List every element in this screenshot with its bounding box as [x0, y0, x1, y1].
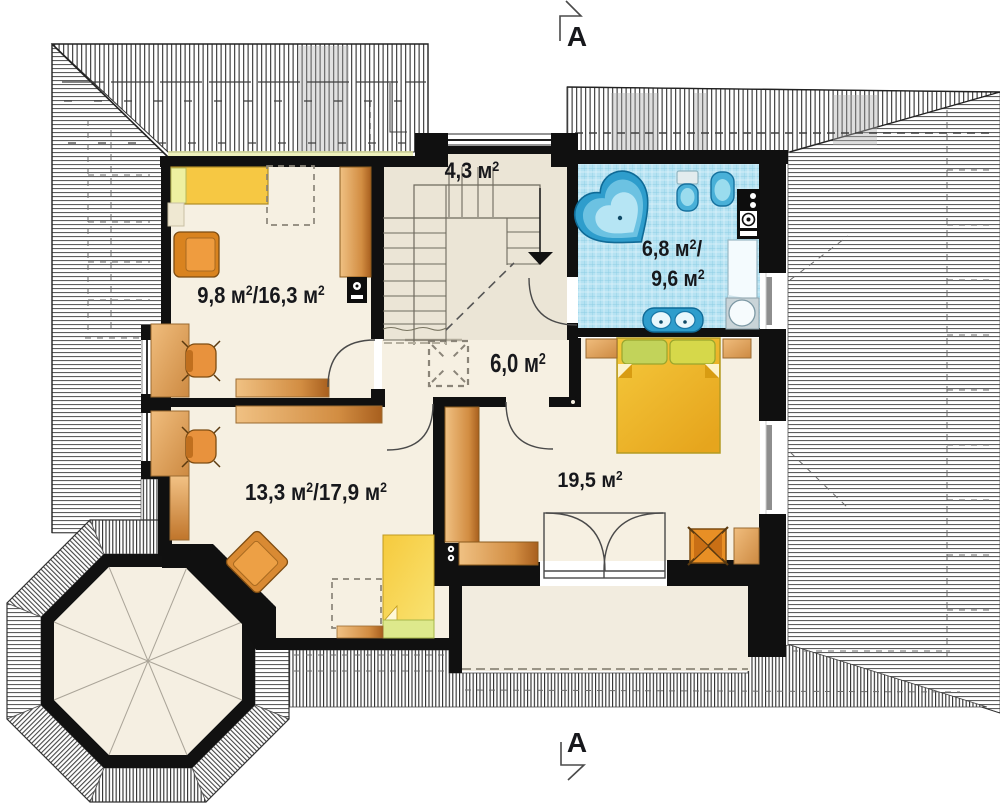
svg-text:A: A	[567, 727, 587, 758]
svg-text:9,6 м2: 9,6 м2	[651, 266, 704, 291]
svg-text:9,8 м2/16,3 м2: 9,8 м2/16,3 м2	[197, 282, 325, 309]
svg-text:13,3 м2/17,9 м2: 13,3 м2/17,9 м2	[245, 479, 387, 506]
svg-text:19,5 м2: 19,5 м2	[557, 468, 622, 492]
svg-text:6,0 м2: 6,0 м2	[490, 349, 546, 378]
svg-text:A: A	[567, 21, 587, 52]
svg-text:4,3 м2: 4,3 м2	[445, 158, 500, 183]
